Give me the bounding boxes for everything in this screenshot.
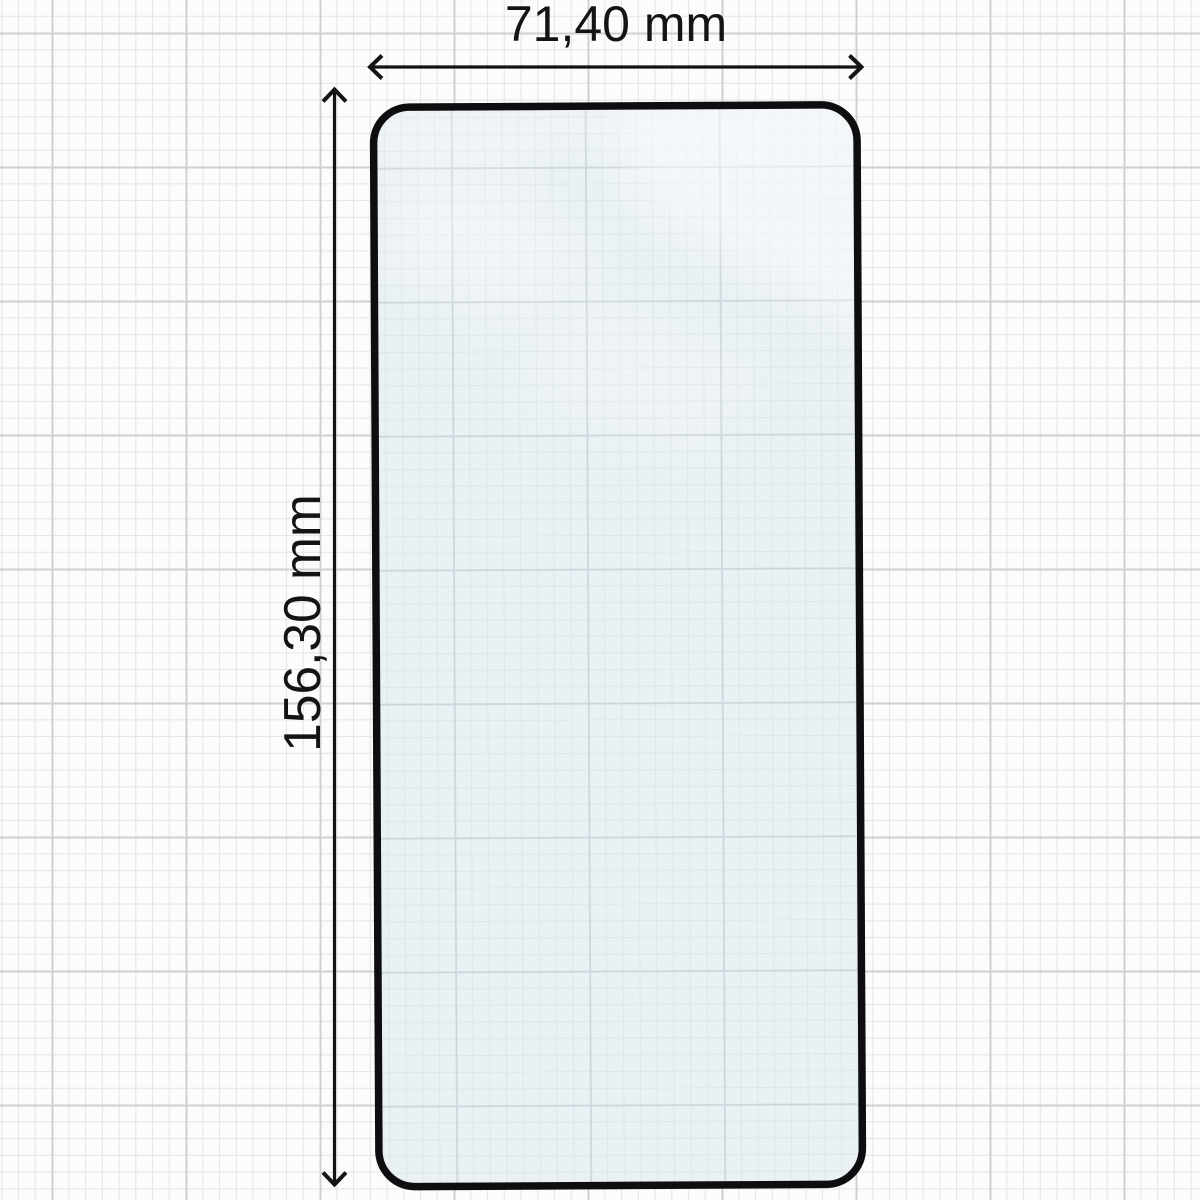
svg-text:71,40 mm: 71,40 mm [505,0,727,52]
svg-text:156,30 mm: 156,30 mm [273,494,331,752]
